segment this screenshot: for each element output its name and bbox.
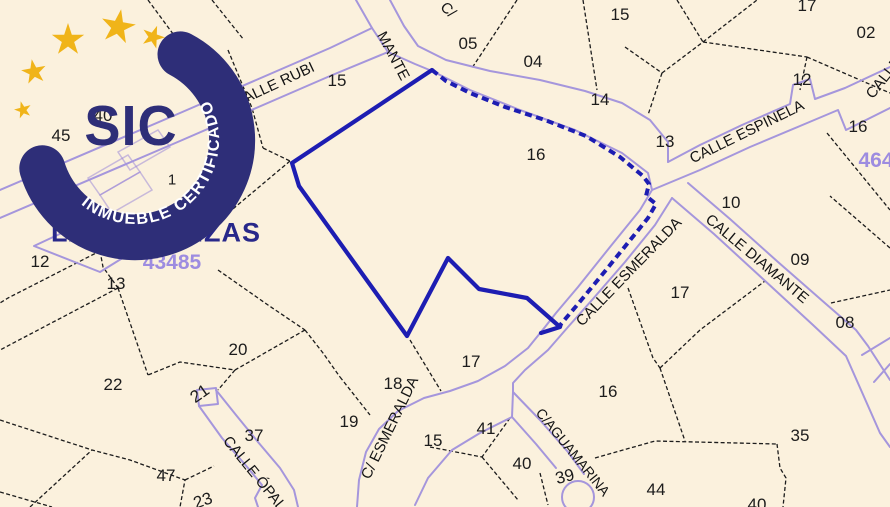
street-c-aguamarina [512,417,556,468]
junction-box [197,388,218,406]
street-calle-esmeralda [357,190,652,507]
street-top-curve [356,0,652,190]
cadastral-map[interactable]: LAS PEDRIZAS43485464CALLE RUBIMANTEC/CAL… [0,0,890,507]
selected-parcel-outline [292,70,656,336]
star-icon [20,57,48,84]
street-calle-espinela [668,67,890,162]
street-calle-diamante [688,183,890,380]
cul-de-sac [562,481,594,507]
star-icon [99,6,138,44]
street-calle-opalo [199,406,262,507]
star-icon [12,99,33,119]
badge-acronym: SIC [84,93,177,159]
star-icon [52,23,84,54]
